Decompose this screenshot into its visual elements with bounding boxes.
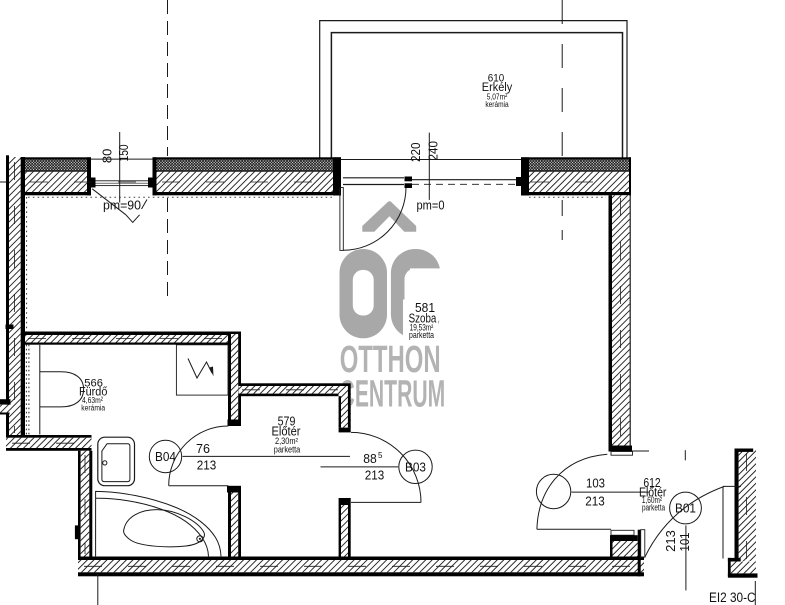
svg-text:pm=0: pm=0 — [417, 198, 445, 213]
svg-text:B01: B01 — [675, 502, 696, 516]
svg-text:150: 150 — [116, 144, 131, 161]
svg-text:213: 213 — [585, 494, 605, 509]
svg-text:CENTRUM: CENTRUM — [340, 374, 446, 416]
svg-text:213: 213 — [197, 458, 217, 473]
svg-text:parketta: parketta — [409, 330, 434, 340]
svg-text:B03: B03 — [405, 460, 426, 474]
svg-text:EI2 30-C: EI2 30-C — [709, 590, 756, 605]
svg-text:76: 76 — [196, 441, 210, 456]
svg-text:103: 103 — [586, 476, 605, 491]
svg-text:5: 5 — [378, 451, 383, 460]
svg-text:220: 220 — [408, 142, 423, 162]
svg-text:parketta: parketta — [642, 503, 665, 513]
svg-text:80: 80 — [99, 149, 114, 163]
svg-text:kerámia: kerámia — [485, 100, 509, 109]
svg-text:213: 213 — [365, 468, 385, 483]
svg-text:parketta: parketta — [274, 445, 301, 455]
svg-text:pm=90: pm=90 — [103, 198, 141, 213]
svg-text:240: 240 — [425, 141, 440, 161]
svg-text:kerámia: kerámia — [81, 404, 105, 413]
svg-text:213: 213 — [663, 530, 678, 552]
svg-text:B04: B04 — [155, 450, 176, 464]
svg-text:101: 101 — [677, 533, 692, 552]
svg-text:88: 88 — [363, 451, 377, 466]
